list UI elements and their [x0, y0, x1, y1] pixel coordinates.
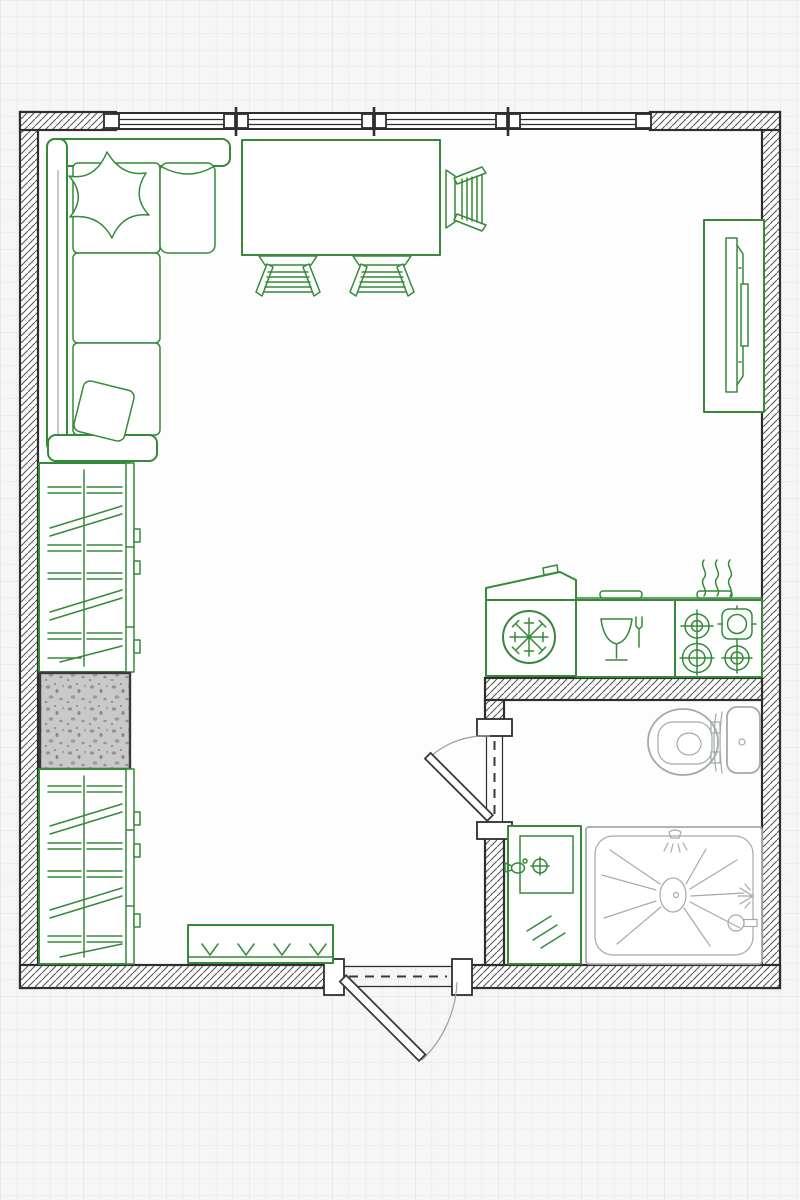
shower	[586, 827, 762, 964]
wall-bottom-left	[20, 965, 334, 988]
tv-unit	[704, 220, 764, 412]
washbasin-body	[508, 826, 581, 964]
bathroom-door-jamb-top	[477, 719, 512, 736]
washbasin-cabinet	[505, 826, 581, 964]
tv-screen	[726, 238, 737, 392]
counter-handle	[600, 591, 642, 598]
toilet	[648, 707, 760, 775]
entry-door-jamb-left	[324, 959, 344, 995]
fridge-snowflake	[510, 618, 548, 656]
wardrobe-upper	[39, 463, 140, 672]
window-end-block-left	[104, 114, 119, 128]
counter-handle	[697, 591, 732, 598]
sofa-back-left	[47, 139, 67, 452]
wall-left	[20, 112, 38, 988]
burner-top-right	[718, 606, 756, 642]
floor-plan-page	[0, 0, 800, 1200]
sofa-back-top	[47, 139, 230, 166]
sofa-armrest	[48, 435, 157, 461]
wall-bathroom-partition-lower	[485, 834, 504, 965]
wall-bottom-right	[456, 965, 780, 988]
wardrobe-handle	[134, 844, 140, 857]
wardrobe-handle	[134, 914, 140, 927]
structural-column	[40, 673, 130, 769]
sofa-seat-middle	[73, 253, 160, 343]
bench	[188, 925, 333, 963]
sofa-seat-top-right	[160, 163, 215, 253]
entry-door-jamb-right	[452, 959, 472, 995]
floor-plan-canvas	[0, 0, 800, 1200]
wardrobe-handle	[134, 561, 140, 574]
wall-top-right	[650, 112, 780, 130]
wardrobe-lower	[39, 769, 140, 964]
dining-table	[242, 140, 440, 255]
wardrobe-handle	[134, 529, 140, 542]
wall-bathroom-top	[485, 678, 762, 700]
wall-top-left	[20, 112, 116, 130]
wardrobe-upper-door	[126, 463, 134, 672]
wardrobe-handle	[134, 812, 140, 825]
wardrobe-lower-door	[126, 769, 134, 964]
wardrobe-handle	[134, 640, 140, 653]
pillow-square	[72, 379, 135, 442]
tv-mount-bracket	[741, 284, 748, 346]
window-end-block-right	[636, 114, 651, 128]
bathroom-door-jamb-bottom	[477, 822, 512, 839]
